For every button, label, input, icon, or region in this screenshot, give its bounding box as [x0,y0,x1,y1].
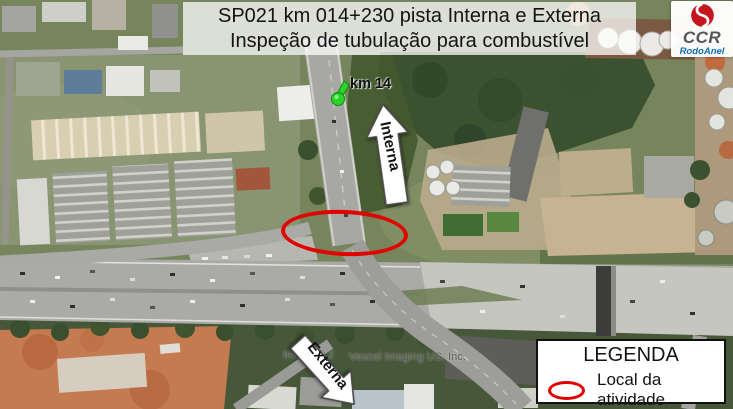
logo-division-text: RodoAnel [680,47,725,57]
ccr-rodoanel-logo: CCR RodoAnel [671,1,733,57]
legend-item: Local da atividade [538,370,724,409]
ccr-swirl-icon [690,3,715,28]
legend-title: LEGENDA [538,344,724,367]
km-14-marker-label: km 14 [350,76,391,92]
legend-red-ellipse-icon [548,381,585,400]
legend-item-label: Local da atividade [597,370,724,409]
title-line-2: Inspeção de tubulação para combustível [230,29,589,54]
map-slide: Image © 2 Vexcel Imaging US, Inc. Intern… [0,0,733,409]
title-line-1: SP021 km 014+230 pista Interna e Externa [218,4,601,29]
km-14-pushpin-icon [330,79,352,107]
imagery-watermark-suffix: Vexcel Imaging US, Inc. [349,351,466,363]
legend-box: LEGENDA Local da atividade [536,339,726,404]
title-banner: SP021 km 014+230 pista Interna e Externa… [183,2,636,55]
logo-company-text: CCR [683,29,721,47]
